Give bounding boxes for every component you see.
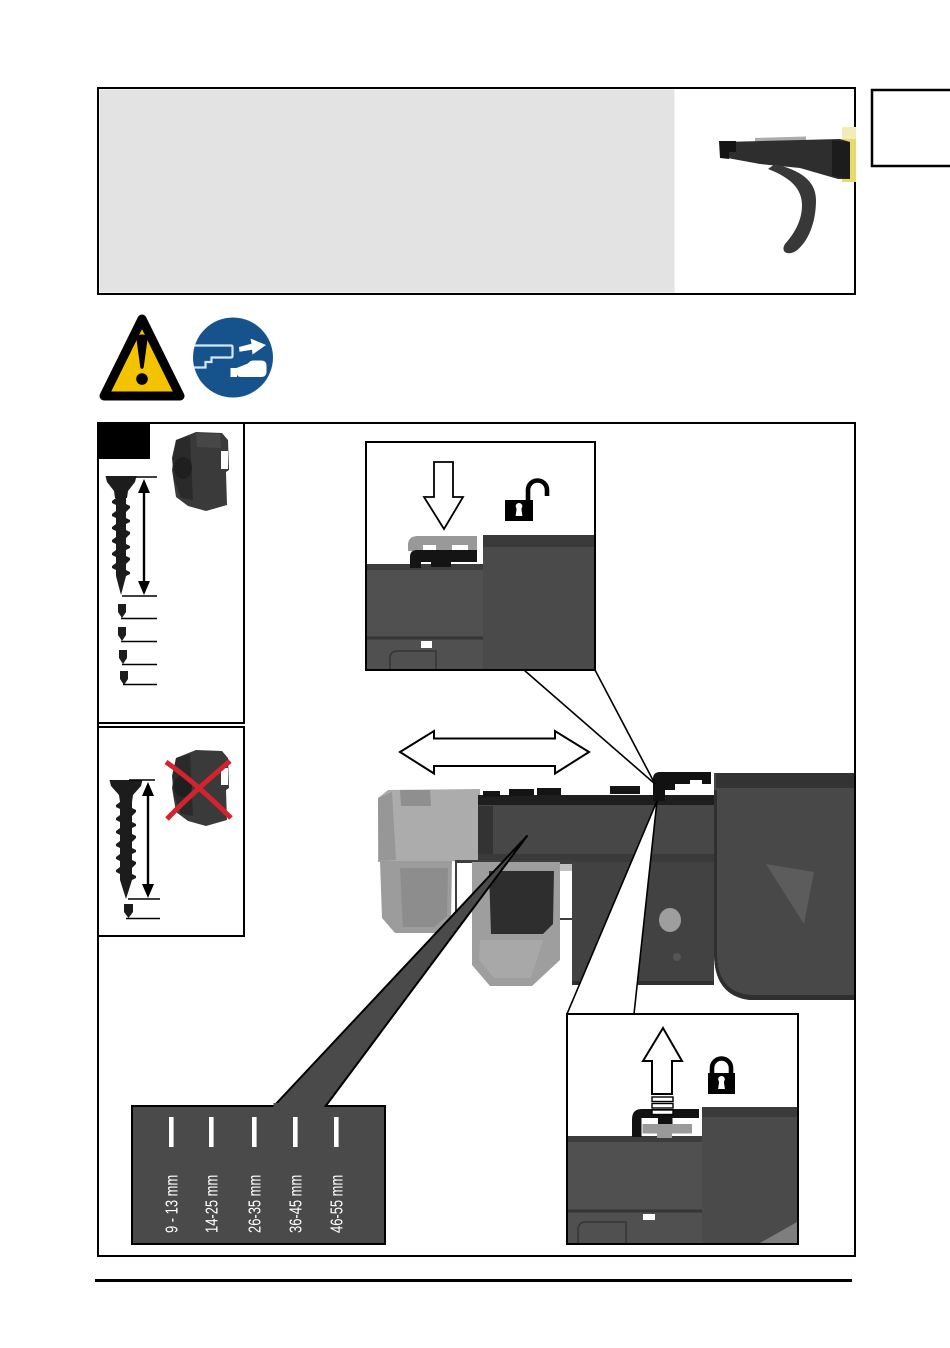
svg-text:14-25 mm: 14-25 mm [203,1175,222,1233]
svg-text:26-35 mm: 26-35 mm [246,1175,265,1233]
svg-text:46-55 mm: 46-55 mm [328,1175,347,1233]
svg-text:9 - 13 mm: 9 - 13 mm [163,1175,182,1233]
svg-text:36-45 mm: 36-45 mm [287,1175,306,1233]
